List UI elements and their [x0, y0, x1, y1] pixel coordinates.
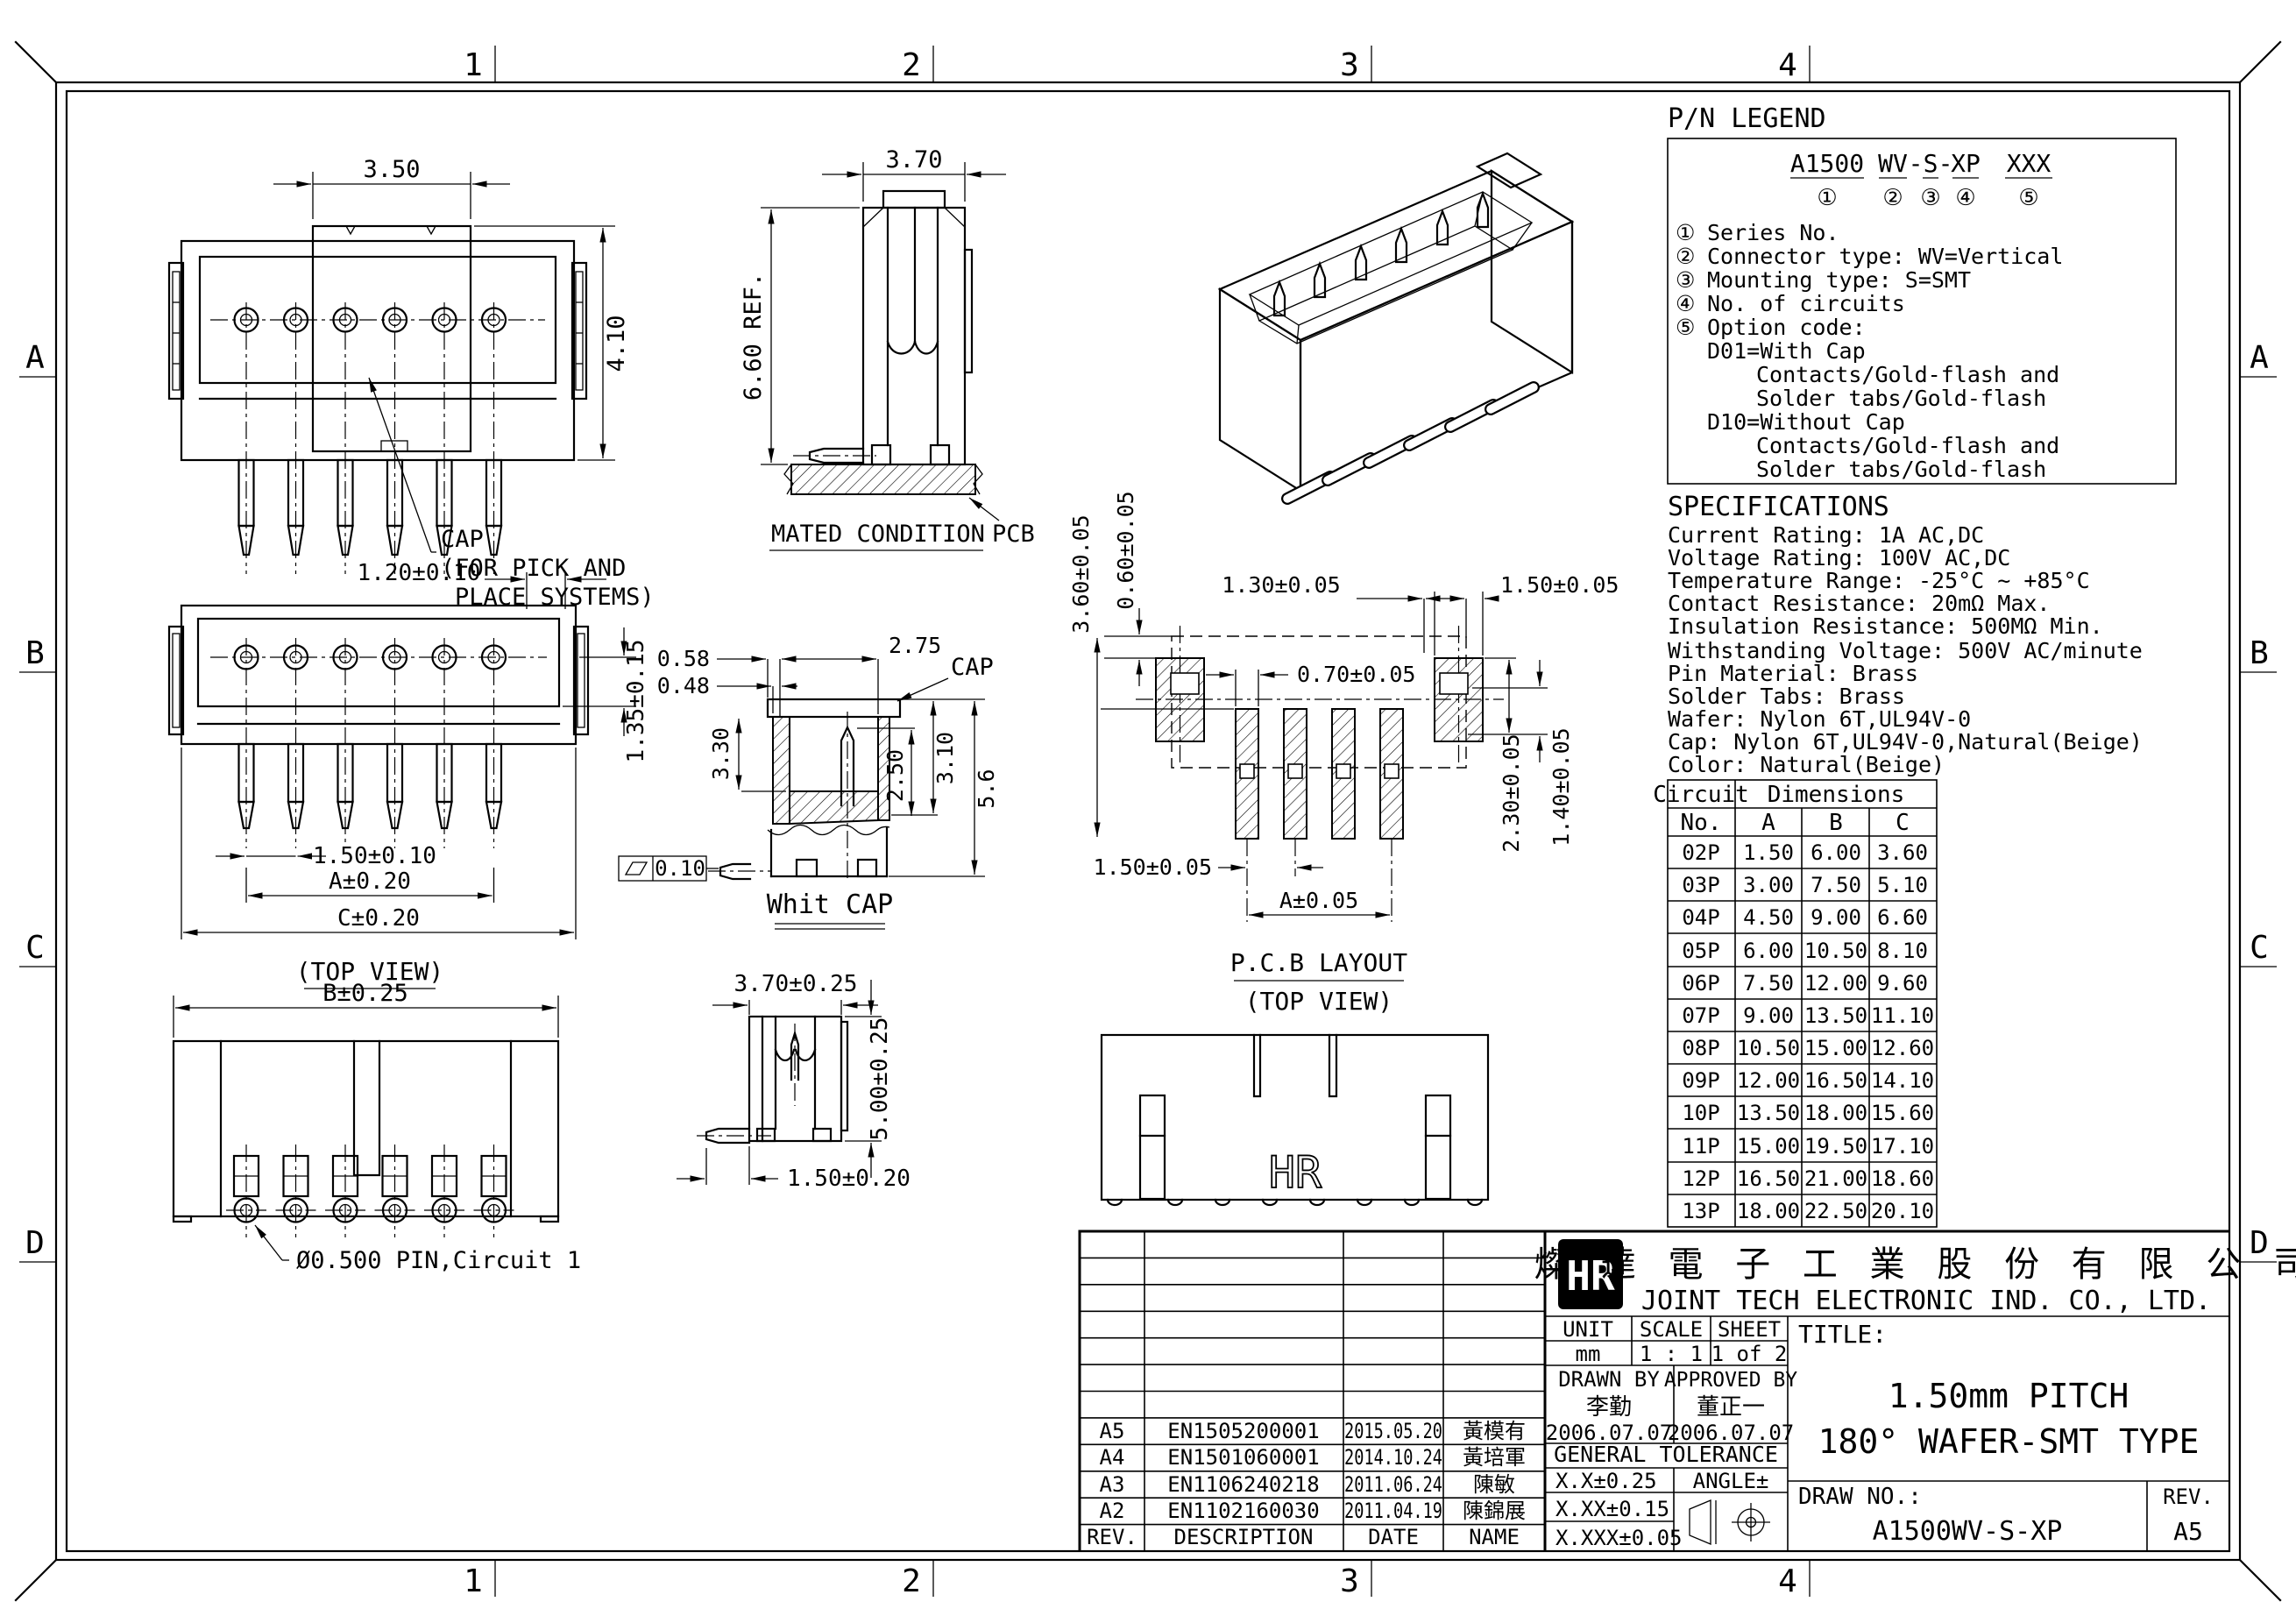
drawing-title-line1: 1.50mm PITCH	[1889, 1377, 2129, 1415]
pad	[1435, 658, 1483, 741]
approved-by-name: 董正一	[1697, 1394, 1765, 1421]
svg-text:9.00: 9.00	[1811, 905, 1861, 930]
view-caption: (TOP VIEW)	[1245, 987, 1393, 1016]
svg-text:14.10: 14.10	[1871, 1068, 1934, 1093]
pad	[1156, 658, 1204, 741]
svg-text:09P: 09P	[1682, 1068, 1719, 1093]
svg-text:Contacts/Gold-flash and: Contacts/Gold-flash and	[1756, 433, 2059, 458]
svg-text:1.50: 1.50	[1743, 840, 1794, 865]
svg-text:D10=Without Cap: D10=Without Cap	[1707, 409, 1905, 435]
svg-text:Temperature Range: -25°C ~ +85: Temperature Range: -25°C ~ +85°C	[1668, 568, 2090, 593]
date-cell: 2011.04.19	[1344, 1499, 1442, 1523]
pn-segment: S	[1924, 149, 1938, 178]
svg-text:Color: Natural(Beige): Color: Natural(Beige)	[1668, 752, 1945, 777]
pcb-label: PCB	[992, 521, 1035, 548]
dim-text: 0.60±0.05	[1113, 491, 1138, 609]
zone-label: 4	[1778, 1563, 1797, 1599]
svg-text:08P: 08P	[1682, 1036, 1719, 1060]
approved-by-label: APPROVED BY	[1664, 1369, 1797, 1392]
pn-sep: -	[1909, 149, 1924, 178]
svg-text:07P: 07P	[1682, 1003, 1719, 1028]
draw-no-label: DRAW NO.:	[1798, 1484, 1922, 1510]
zone-label: 3	[1340, 1563, 1359, 1599]
angle-label: ANGLE±	[1693, 1469, 1769, 1493]
svg-text:Withstanding Voltage: 500V AC/: Withstanding Voltage: 500V AC/minute	[1668, 638, 2143, 663]
unit-label: UNIT	[1563, 1317, 1613, 1342]
company-name-en: JOINT TECH ELECTRONIC IND. CO., LTD.	[1641, 1286, 2211, 1316]
dim-text: 5.00±0.25	[867, 1017, 893, 1141]
pn-circle: ③	[1920, 185, 1940, 211]
rev-cell: A2	[1100, 1499, 1125, 1523]
name-header: NAME	[1469, 1525, 1520, 1549]
svg-text:03P: 03P	[1682, 873, 1719, 897]
dim-text: 5.6	[974, 769, 999, 808]
svg-text:18.00: 18.00	[1737, 1199, 1800, 1223]
svg-text:12.60: 12.60	[1871, 1036, 1934, 1060]
svg-text:Pin Material: Brass: Pin Material: Brass	[1668, 661, 1918, 686]
view-isometric	[1220, 153, 1572, 499]
svg-text:Solder tabs/Gold-flash: Solder tabs/Gold-flash	[1756, 386, 2046, 411]
dim-text: 6.60 REF.	[740, 273, 767, 400]
svg-text:13.50: 13.50	[1804, 1003, 1867, 1028]
cap-note: PLACE SYSTEMS)	[455, 584, 655, 611]
pn-circle: ⑤	[2018, 185, 2038, 211]
name-cell: 黃模有	[1463, 1419, 1526, 1443]
specifications: SPECIFICATIONS Current Rating: 1A AC,DC …	[1668, 492, 2143, 777]
legend-lines: ①Series No. ②Connector type: WV=Vertical…	[1676, 220, 2063, 482]
pn-circle: ②	[1882, 185, 1903, 211]
dim-text: 0.48	[657, 673, 710, 698]
dim-text: 1.50±0.05	[1094, 854, 1212, 880]
svg-text:15.00: 15.00	[1737, 1134, 1800, 1159]
drawing-title-line2: 180° WAFER-SMT TYPE	[1818, 1422, 2200, 1461]
dim-text: A±0.20	[329, 868, 411, 895]
svg-text:②: ②	[1676, 244, 1695, 269]
svg-text:Cap: Nylon 6T,UL94V-0,Natural(: Cap: Nylon 6T,UL94V-0,Natural(Beige)	[1668, 729, 2143, 755]
tolerance-2: X.XX±0.15	[1555, 1497, 1669, 1521]
svg-text:7.50: 7.50	[1811, 873, 1861, 897]
dim-text: 1.40±0.05	[1548, 727, 1574, 846]
svg-text:12.00: 12.00	[1737, 1068, 1800, 1093]
svg-text:18.60: 18.60	[1871, 1166, 1934, 1191]
rev-value: A5	[2173, 1517, 2203, 1546]
svg-text:11P: 11P	[1682, 1134, 1719, 1159]
view-caption: MATED CONDITION	[771, 521, 985, 548]
dim-text: 3.10	[932, 732, 958, 784]
view-whit-cap: 0.10 0.58 2.75 0.48 CAP 3.30 2.50 3.10 5…	[619, 633, 999, 929]
revision-table: A5 EN1505200001 2015.05.20 黃模有 A4 EN1501…	[1080, 1231, 1545, 1551]
desc-header: DESCRIPTION	[1174, 1525, 1314, 1549]
dim-text: 4.10	[603, 315, 630, 372]
svg-text:Insulation Resistance: 500MΩ M: Insulation Resistance: 500MΩ Min.	[1668, 613, 2103, 639]
sheet-value: 1 of 2	[1711, 1342, 1788, 1366]
svg-text:Connector type: WV=Vertical: Connector type: WV=Vertical	[1707, 244, 2063, 269]
col-header: B	[1829, 810, 1843, 836]
svg-text:12P: 12P	[1682, 1166, 1719, 1191]
svg-text:06P: 06P	[1682, 971, 1719, 996]
col-header: C	[1896, 810, 1910, 836]
svg-text:Contacts/Gold-flash and: Contacts/Gold-flash and	[1756, 362, 2059, 387]
svg-text:③: ③	[1676, 267, 1695, 293]
dim-text: C±0.20	[337, 905, 420, 932]
dim-text: 1.35±0.15	[623, 640, 649, 763]
cap-note: CAP	[441, 526, 484, 553]
pn-legend: P/N LEGEND A1500 WV - S - XP XXX ① ② ③ ④…	[1668, 103, 2176, 484]
dim-text: A±0.05	[1279, 888, 1358, 913]
svg-text:Mounting type: S=SMT: Mounting type: S=SMT	[1707, 267, 1971, 293]
svg-text:①: ①	[1676, 220, 1695, 245]
svg-text:13.50: 13.50	[1737, 1101, 1800, 1125]
svg-text:11.10: 11.10	[1871, 1003, 1934, 1028]
col-header: No.	[1681, 810, 1722, 836]
svg-text:02P: 02P	[1682, 840, 1719, 865]
zone-label: 1	[464, 47, 483, 83]
drawn-by-name: 李勤	[1586, 1394, 1632, 1421]
rev-label: REV.	[2163, 1485, 2214, 1509]
dim-text: B±0.25	[322, 980, 408, 1007]
title-label: TITLE:	[1798, 1320, 1887, 1349]
zone-label: C	[2250, 930, 2269, 966]
legend-title: P/N LEGEND	[1668, 103, 1826, 134]
sheet-label: SHEET	[1718, 1317, 1781, 1342]
dim-text: 3.70	[885, 146, 942, 174]
svg-text:15.00: 15.00	[1804, 1036, 1867, 1060]
svg-text:12.00: 12.00	[1804, 971, 1867, 996]
svg-text:Solder tabs/Gold-flash: Solder tabs/Gold-flash	[1756, 457, 2046, 482]
name-cell: 黃培軍	[1463, 1445, 1526, 1470]
svg-text:6.00: 6.00	[1811, 840, 1861, 865]
tolerance-3: X.XXX±0.05	[1555, 1526, 1683, 1550]
rev-cell: A3	[1100, 1472, 1125, 1497]
view-pcb-layout: 0.60±0.05 3.60±0.05 1.30±0.05 1.50±0.05 …	[1068, 491, 1619, 1016]
zone-label: 4	[1778, 47, 1797, 83]
rev-cell: A5	[1100, 1419, 1125, 1443]
drawn-by-label: DRAWN BY	[1558, 1367, 1660, 1392]
view-caption: P.C.B LAYOUT	[1230, 948, 1407, 977]
rev-header: REV.	[1087, 1525, 1137, 1549]
svg-text:4.50: 4.50	[1743, 905, 1794, 930]
name-cell: 陳敏	[1473, 1472, 1515, 1497]
svg-text:6.00: 6.00	[1743, 939, 1794, 963]
view-side: 3.70±0.25 5.00±0.25 1.50±0.20	[677, 971, 911, 1192]
svg-text:Solder Tabs: Brass: Solder Tabs: Brass	[1668, 684, 1905, 709]
dim-text: 3.50	[363, 156, 420, 183]
pn-circle: ④	[1955, 185, 1975, 211]
svg-text:18.00: 18.00	[1804, 1101, 1867, 1125]
pcb-section	[791, 464, 975, 494]
pin-pads	[226, 1145, 514, 1237]
svg-text:Contact Resistance: 20mΩ Max.: Contact Resistance: 20mΩ Max.	[1668, 591, 2051, 616]
svg-text:20.10: 20.10	[1871, 1199, 1934, 1223]
name-cell: 陳錦展	[1463, 1499, 1526, 1523]
unit-value: mm	[1576, 1342, 1601, 1366]
svg-text:Voltage Rating: 100V AC,DC: Voltage Rating: 100V AC,DC	[1668, 545, 2010, 571]
svg-text:6.60: 6.60	[1877, 905, 1928, 930]
general-tolerance-label: GENERAL TOLERANCE	[1554, 1442, 1778, 1467]
smt-leads	[1287, 387, 1534, 499]
svg-text:13P: 13P	[1682, 1199, 1719, 1223]
view-top-view: 1.20±0.10 1.35±0.15 1.50±0.10 A±0.20 C±0…	[169, 560, 649, 989]
company-name-cn: 燦 達 電 子 工 業 股 份 有 限 公 司	[1534, 1244, 2296, 1285]
svg-text:3.00: 3.00	[1743, 873, 1794, 897]
dim-text: 1.50±0.10	[313, 843, 436, 869]
svg-text:05P: 05P	[1682, 939, 1719, 963]
zone-label: 2	[902, 1563, 921, 1599]
svg-text:21.00: 21.00	[1804, 1166, 1867, 1191]
view-front-top: 3.50 4.10 CAP (FOR PICK AND PLACE SYSTEM…	[169, 156, 655, 611]
company-banner: HR 燦 達 電 子 工 業 股 份 有 限 公 司 JOINT TECH EL…	[1534, 1239, 2296, 1316]
pn-segment: WV	[1878, 149, 1908, 178]
desc-cell: EN1501060001	[1167, 1445, 1319, 1470]
view-bottom: B±0.25 Ø0.500 PIN,Circuit 1	[174, 980, 581, 1274]
rev-cell: A4	[1100, 1445, 1125, 1470]
desc-cell: EN1106240218	[1167, 1472, 1319, 1497]
zone-label: D	[25, 1225, 45, 1261]
svg-text:17.10: 17.10	[1871, 1134, 1934, 1159]
dim-text: 3.60±0.05	[1068, 514, 1094, 633]
flatness-value: 0.10	[655, 856, 705, 881]
dimensions-table: Circuit Dimensions No. A B C 02P1.506.00…	[1653, 780, 1937, 1227]
view-front-hr: HR	[1102, 1035, 1488, 1205]
date-cell: 2015.05.20	[1344, 1419, 1442, 1443]
svg-text:04P: 04P	[1682, 905, 1719, 930]
pin-note: Ø0.500 PIN,Circuit 1	[296, 1247, 581, 1274]
dim-text: 1.50±0.05	[1500, 572, 1619, 598]
zone-label: B	[2250, 635, 2269, 671]
svg-text:10P: 10P	[1682, 1101, 1719, 1125]
dim-text: 3.70±0.25	[734, 971, 858, 997]
svg-text:10.50: 10.50	[1804, 939, 1867, 963]
pn-segment: XXX	[2007, 149, 2052, 178]
pn-segment: XP	[1951, 149, 1981, 178]
svg-text:No. of circuits: No. of circuits	[1707, 291, 1905, 316]
drawing-sheet: 1 2 3 4 1 2 3 4 A B C D A B C D 3.5	[0, 0, 2296, 1623]
svg-text:3.60: 3.60	[1877, 840, 1928, 865]
title-block: A5 EN1505200001 2015.05.20 黃模有 A4 EN1501…	[1080, 1231, 2296, 1551]
dim-text: 0.58	[657, 646, 710, 671]
view-mated-condition: 3.70 6.60 REF. MATED CONDITION PCB	[740, 146, 1035, 550]
zone-label: B	[25, 635, 45, 671]
svg-text:Current Rating: 1A AC,DC: Current Rating: 1A AC,DC	[1668, 522, 1984, 548]
zone-label: C	[25, 930, 45, 966]
col-header: A	[1761, 810, 1775, 836]
projection-symbol-icon	[1690, 1500, 1770, 1544]
zone-label: A	[25, 340, 45, 376]
svg-text:22.50: 22.50	[1804, 1199, 1867, 1223]
svg-text:Series No.: Series No.	[1707, 220, 1839, 245]
svg-text:9.60: 9.60	[1877, 971, 1928, 996]
svg-text:19.50: 19.50	[1804, 1134, 1867, 1159]
spec-title: SPECIFICATIONS	[1668, 492, 1889, 522]
svg-text:7.50: 7.50	[1743, 971, 1794, 996]
date-cell: 2014.10.24	[1344, 1445, 1442, 1470]
date-cell: 2011.06.24	[1344, 1472, 1442, 1497]
svg-text:15.60: 15.60	[1871, 1101, 1934, 1125]
zone-label: A	[2250, 340, 2269, 376]
svg-text:16.50: 16.50	[1804, 1068, 1867, 1093]
svg-text:D01=With Cap: D01=With Cap	[1707, 338, 1866, 364]
pn-circle: ①	[1817, 185, 1837, 211]
tolerance-1: X.X±0.25	[1555, 1469, 1657, 1493]
col-header: Dimensions	[1768, 782, 1905, 808]
dim-text: 2.75	[889, 633, 941, 658]
zone-label: 1	[464, 1563, 483, 1599]
dim-text: 0.70±0.05	[1297, 662, 1415, 687]
svg-text:Wafer: Nylon 6T,UL94V-0: Wafer: Nylon 6T,UL94V-0	[1668, 706, 1971, 732]
dim-text: 2.30±0.05	[1499, 734, 1524, 852]
dim-text: 2.50	[882, 749, 908, 802]
svg-text:④: ④	[1676, 291, 1695, 316]
desc-cell: EN1505200001	[1167, 1419, 1319, 1443]
date-header: DATE	[1368, 1525, 1419, 1549]
desc-cell: EN1102160030	[1167, 1499, 1319, 1523]
zone-label: 2	[902, 47, 921, 83]
draw-no-value: A1500WV-S-XP	[1873, 1516, 2063, 1547]
svg-text:8.10: 8.10	[1877, 939, 1928, 963]
svg-text:9.00: 9.00	[1743, 1003, 1794, 1028]
dim-text: 1.20±0.10	[358, 560, 481, 586]
svg-text:Option code:: Option code:	[1707, 315, 1866, 340]
dim-text: 1.50±0.20	[787, 1166, 911, 1192]
flatness-symbol-icon	[626, 862, 647, 875]
pn-segment: A1500	[1790, 149, 1864, 178]
scale-label: SCALE	[1640, 1317, 1703, 1342]
svg-text:⑤: ⑤	[1676, 315, 1695, 340]
view-caption: Whit CAP	[767, 889, 894, 920]
svg-text:5.10: 5.10	[1877, 873, 1928, 897]
svg-text:16.50: 16.50	[1737, 1166, 1800, 1191]
dim-text: 1.30±0.05	[1222, 572, 1340, 598]
cap-label: CAP	[951, 654, 994, 681]
molded-marking: HR	[1269, 1147, 1322, 1198]
dim-text: 3.30	[708, 727, 733, 780]
svg-text:10.50: 10.50	[1737, 1036, 1800, 1060]
zone-label: 3	[1340, 47, 1359, 83]
col-header: Circuit	[1653, 782, 1749, 808]
scale-value: 1 : 1	[1640, 1342, 1703, 1366]
